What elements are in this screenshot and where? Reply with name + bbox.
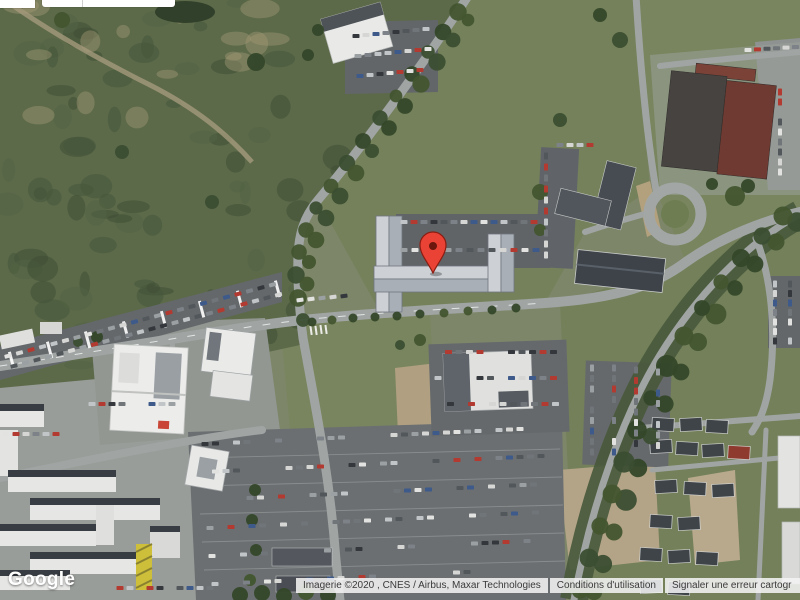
- google-logo[interactable]: Google: [8, 569, 75, 591]
- cutoff-ui-card-2[interactable]: [42, 0, 175, 7]
- satellite-map[interactable]: Google Imagerie ©2020 , CNES / Airbus, M…: [0, 0, 800, 600]
- card-divider: [82, 0, 83, 7]
- imagery-credit: Imagerie ©2020 , CNES / Airbus, Maxar Te…: [296, 578, 548, 593]
- report-map-error-link[interactable]: Signaler une erreur cartogr: [665, 578, 800, 593]
- terms-of-use-link[interactable]: Conditions d'utilisation: [550, 578, 663, 593]
- map-imagery[interactable]: [0, 0, 800, 600]
- cutoff-ui-card[interactable]: [0, 0, 35, 8]
- attribution-bar: Imagerie ©2020 , CNES / Airbus, Maxar Te…: [296, 578, 800, 593]
